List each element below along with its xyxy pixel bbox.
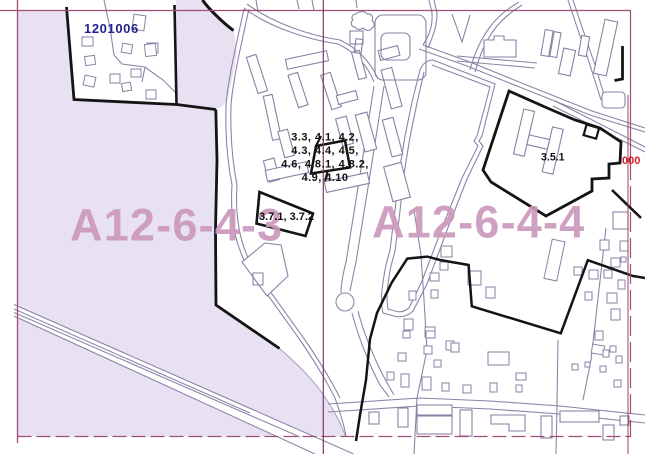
svg-text:3.3, 4.1, 4.2,: 3.3, 4.1, 4.2, <box>291 132 358 144</box>
svg-text:4.9, 4.10: 4.9, 4.10 <box>302 172 349 184</box>
svg-text:3.5.1: 3.5.1 <box>541 152 565 164</box>
svg-text:000: 000 <box>622 155 640 167</box>
svg-text:1201006: 1201006 <box>84 21 139 36</box>
svg-text:4.6, 4.8.1, 4.8.2,: 4.6, 4.8.1, 4.8.2, <box>281 158 369 170</box>
svg-text:4.3, 4.4, 4.5,: 4.3, 4.4, 4.5, <box>291 145 358 157</box>
svg-text:3.7.1, 3.7.2: 3.7.1, 3.7.2 <box>259 211 314 223</box>
svg-text:A12-6-4-3: A12-6-4-3 <box>70 200 283 251</box>
svg-text:A12-6-4-4: A12-6-4-4 <box>372 197 585 248</box>
